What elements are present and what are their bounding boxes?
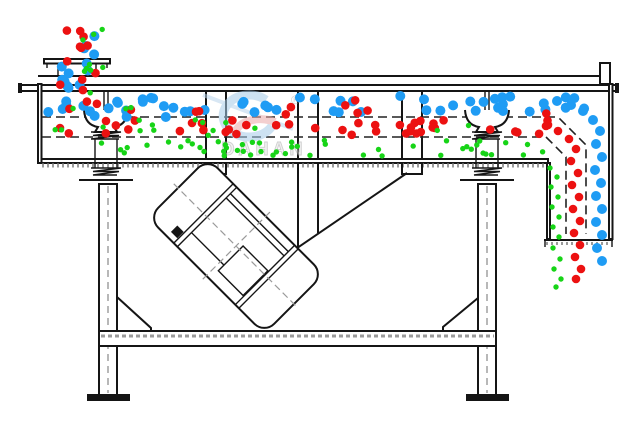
particle-green [548,184,553,189]
particle-blue [591,139,601,149]
particle-green [503,140,508,145]
particle-blue [250,107,260,117]
particle-green [289,139,294,144]
particle-green [100,65,105,70]
top-rail [20,85,618,91]
particle-green [550,245,555,250]
particle-green [88,68,93,73]
particle-red [407,123,416,132]
particle-green [556,234,561,239]
particle-blue [448,100,458,110]
particle-blue [597,152,607,162]
particle-green [554,174,559,179]
particle-blue [168,103,178,113]
particle-green [178,144,183,149]
particle-red [569,205,578,214]
particle-green [361,152,366,157]
particle-green [201,149,206,154]
particle-green [283,151,288,156]
particle-green [464,144,469,149]
particle-red [176,127,185,136]
particle-green [477,138,482,143]
box-left-wall [38,84,42,163]
particle-red [287,103,296,112]
particle-red [272,121,281,130]
cross-beam [99,331,496,346]
vibrating-screen-diagram: ® DAHAN [0,0,638,428]
particle-green [193,117,198,122]
right-support-leg [466,184,509,401]
particle-blue [590,165,600,175]
particle-green [166,139,171,144]
particle-green [258,149,263,154]
particle-green [99,140,104,145]
particle-green [100,27,105,32]
particle-blue [597,204,607,214]
particle-green [100,124,105,129]
particle-green [210,128,215,133]
particle-green [125,145,130,150]
particle-blue [310,94,320,104]
right-leg-foot [466,394,509,401]
particle-red [577,265,586,274]
particle-green [252,126,257,131]
particle-green [547,165,552,170]
particle-green [223,120,228,125]
particle-blue [64,83,74,93]
particle-blue [237,99,247,109]
inlet-flange [44,59,110,64]
particle-green [435,128,440,133]
particle-green [150,122,155,127]
particle-blue [138,97,148,107]
particle-red [576,217,585,226]
particle-red [396,121,405,130]
particle-blue [591,217,601,227]
particle-red [242,121,251,130]
particle-red [63,57,72,66]
particle-green [53,127,58,132]
top-rail-right-cap [615,83,619,93]
particle-green [274,149,279,154]
particle-green [555,194,560,199]
particle-blue [104,103,114,113]
motor-centerlines [140,150,332,342]
upper-screen-deck-line [42,117,586,234]
particle-red [574,169,583,178]
particle-green [190,141,195,146]
particle-red [353,109,362,118]
particle-red [228,116,237,125]
base-frame [99,297,496,346]
particle-red [354,119,363,128]
particle-blue [64,68,74,78]
particle-red [195,107,204,116]
chute-left-wall [547,163,550,239]
particle-red [77,44,86,53]
particle-green [438,153,443,158]
diagram-canvas: ® DAHAN [0,0,638,428]
particle-blue [566,100,576,110]
particle-green [376,147,381,152]
particle-red [124,125,133,134]
particle-green [91,32,96,37]
particle-blue [490,94,500,104]
bracket-center-channel [298,163,318,247]
particle-red [513,128,522,137]
particle-blue [498,106,508,116]
particle-red [285,120,294,129]
particle-green [379,153,384,158]
particle-blue [295,93,305,103]
particle-green [557,256,562,261]
particle-blue [435,106,445,116]
particle-red [102,129,111,138]
particle-blue [525,107,535,117]
bracket-diagonal-right [284,173,407,257]
particle-red [102,117,111,126]
particle-green [444,138,449,143]
particle-red [341,101,350,110]
top-rail-left-cap [18,83,22,93]
particle-blue [588,115,598,125]
particle-red [568,181,577,190]
particle-green [323,142,328,147]
particle-green [137,118,142,123]
particle-red [554,127,563,136]
particle-green [88,90,93,95]
particle-red [535,130,544,139]
feed-inlet [44,59,110,76]
particle-green [82,69,87,74]
box-right-wall [609,84,613,239]
particle-blue [595,126,605,136]
particle-green [206,133,211,138]
particle-blue [329,106,339,116]
particle-green [144,143,149,148]
particle-blue [479,97,489,107]
particle-green [59,127,64,132]
particle-blue [272,105,282,115]
particle-red [221,128,230,137]
particle-green [151,128,156,133]
particle-red [351,96,360,105]
particle-red [347,131,356,140]
particle-blue [113,98,123,108]
particle-green [556,214,561,219]
particle-blue [465,97,475,107]
particle-red [439,116,448,125]
particle-red [486,125,495,134]
particle-red [575,193,584,202]
particle-green [521,152,526,157]
particle-green [525,142,530,147]
particle-blue [597,230,607,240]
left-support-leg [87,184,130,401]
particle-blue [161,112,171,122]
particle-green [80,37,85,42]
particle-green [307,153,312,158]
particle-green [295,144,300,149]
particle-green [248,152,253,157]
particle-blue [180,107,190,117]
right-brace [443,298,478,332]
particle-blue [395,91,405,101]
particle-blue [263,102,273,112]
particle-red [363,106,372,115]
particle-green [241,149,246,154]
particle-green [185,138,190,143]
left-leg-foot [87,394,130,401]
particle-red [65,129,74,138]
particle-red [112,121,121,130]
particle-blue [578,106,588,116]
particle-red [372,127,381,136]
particle-red [570,229,579,238]
particle-blue [552,96,562,106]
particle-blue [43,107,53,117]
particle-green [200,120,205,125]
particle-red [83,97,92,106]
left-brace [117,297,151,332]
particle-green [122,150,127,155]
particle-red [79,86,88,95]
particle-red [572,145,581,154]
particle-green [70,106,75,111]
particle-red [571,253,580,262]
particle-green [137,128,142,133]
particle-green [235,148,240,153]
particle-green [466,123,471,128]
particle-green [257,140,262,145]
particle-red [572,275,581,284]
particle-red [576,241,585,250]
particle-green [553,284,558,289]
particle-green [87,62,92,67]
particle-red [311,124,320,133]
particle-red [542,122,551,131]
particle-green [550,224,555,229]
particle-blue [90,111,100,121]
particle-blue [591,191,601,201]
particle-red [232,130,241,139]
particle-green [540,149,545,154]
particle-blue [471,106,481,116]
particle-blue [159,101,169,111]
particle-green [289,144,294,149]
particle-blue [592,243,602,253]
particle-blue [148,93,158,103]
particle-red [565,135,574,144]
particle-green [411,143,416,148]
particle-red [63,26,72,35]
particle-red [93,100,102,109]
particle-green [250,140,255,145]
particle-green [223,142,228,147]
particle-red [78,75,87,84]
particle-green [483,151,488,156]
particle-red [56,80,65,89]
particle-blue [539,98,549,108]
vibration-motor [140,150,332,342]
particle-blue [596,178,606,188]
box-right-upstand [600,63,610,84]
particle-green [240,142,245,147]
particle-green [551,266,556,271]
particle-green [549,204,554,209]
particle-blue [89,49,99,59]
particle-green [489,152,494,157]
particle-blue [421,105,431,115]
particle-green [216,139,221,144]
particle-blue [419,94,429,104]
particle-green [558,276,563,281]
particle-green [123,106,128,111]
particle-red [199,126,208,135]
particle-red [282,110,291,119]
particle-green [221,149,226,154]
particle-red [567,157,576,166]
particle-blue [597,256,607,266]
particle-green [197,145,202,150]
particle-red [338,126,347,135]
particle-green [128,105,133,110]
